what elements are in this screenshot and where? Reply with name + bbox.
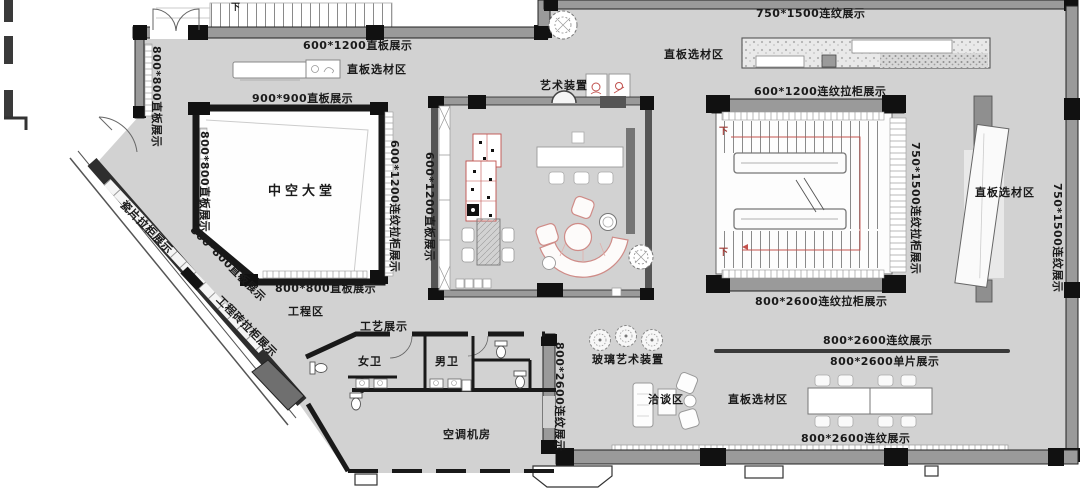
label-glass-art: 玻璃艺术装置 [592, 354, 664, 366]
label-display-800x800-bottom: 800*800直板展示 [275, 283, 376, 295]
vlabel-display-800x800-1: 800*800直板展示 [150, 46, 162, 147]
label-hvac-room: 空调机房 [443, 429, 491, 441]
label-stair-down-2: 下 [719, 249, 728, 258]
label-display-800x2600-mid: 800*2600连纹展示 [823, 335, 932, 347]
label-display-800x2600-cabinet: 800*2600连纹拉柜展示 [755, 296, 887, 308]
reception-desk [233, 60, 340, 80]
label-art-installation: 艺术装置 [540, 80, 588, 92]
wall-top-left [133, 25, 548, 40]
plant-center [629, 245, 653, 269]
label-women-wc: 女卫 [358, 356, 382, 368]
vlabel-display-800x2600: 800*2600连纹展示 [553, 342, 565, 451]
vlabel-display-750x1500: 750*1500连纹展示 [1051, 183, 1063, 292]
label-stair-down-1: 下 [719, 128, 728, 137]
wall-bottom [556, 445, 1078, 466]
label-select-area-top-right: 直板选材区 [664, 49, 724, 61]
vlabel-display-600x1200-flat: 600*1200直板展示 [423, 152, 435, 261]
label-display-750x1500-top: 750*1500连纹展示 [756, 8, 865, 20]
label-stair-down-top: 下 [231, 4, 240, 13]
label-select-area-top-left: 直板选材区 [347, 64, 407, 76]
label-display-900x900: 900*900直板展示 [252, 93, 353, 105]
label-display-800x2600-single: 800*2600单片展示 [830, 356, 939, 368]
vlabel-display-750x1500-cabinet: 750*1500连纹拉柜展示 [909, 142, 921, 274]
label-craft-display: 工艺展示 [360, 321, 408, 333]
select-cabinet-top-right [742, 38, 990, 68]
label-atrium: 中空大堂 [268, 185, 336, 199]
label-select-area-bottom: 直板选材区 [728, 394, 788, 406]
label-talk-area: 洽谈区 [648, 394, 684, 406]
wall-right [1064, 6, 1080, 462]
label-select-area-right: 直板选材区 [975, 187, 1035, 199]
floor-plan: 600*1200直板展示 直板选材区 900*900直板展示 中空大堂 艺术装置… [0, 0, 1080, 490]
label-engineering-area: 工程区 [288, 306, 324, 318]
wall-left-vestibule [4, 0, 26, 130]
vlabel-display-600x1200-cabinet: 600*1200连纹拉柜展示 [388, 140, 400, 272]
label-display-600x1200-cabinet: 600*1200连纹拉柜展示 [754, 86, 886, 98]
label-display-800x2600-bottom: 800*2600连纹展示 [801, 433, 910, 445]
label-display-600x1200-flat: 600*1200直板展示 [303, 40, 412, 52]
exterior-stair-top [156, 3, 392, 27]
plant-top [549, 11, 577, 39]
vlabel-display-800x800-2: 800*800直板展示 [198, 131, 210, 232]
label-men-wc: 男卫 [435, 356, 459, 368]
staircase [706, 95, 906, 293]
